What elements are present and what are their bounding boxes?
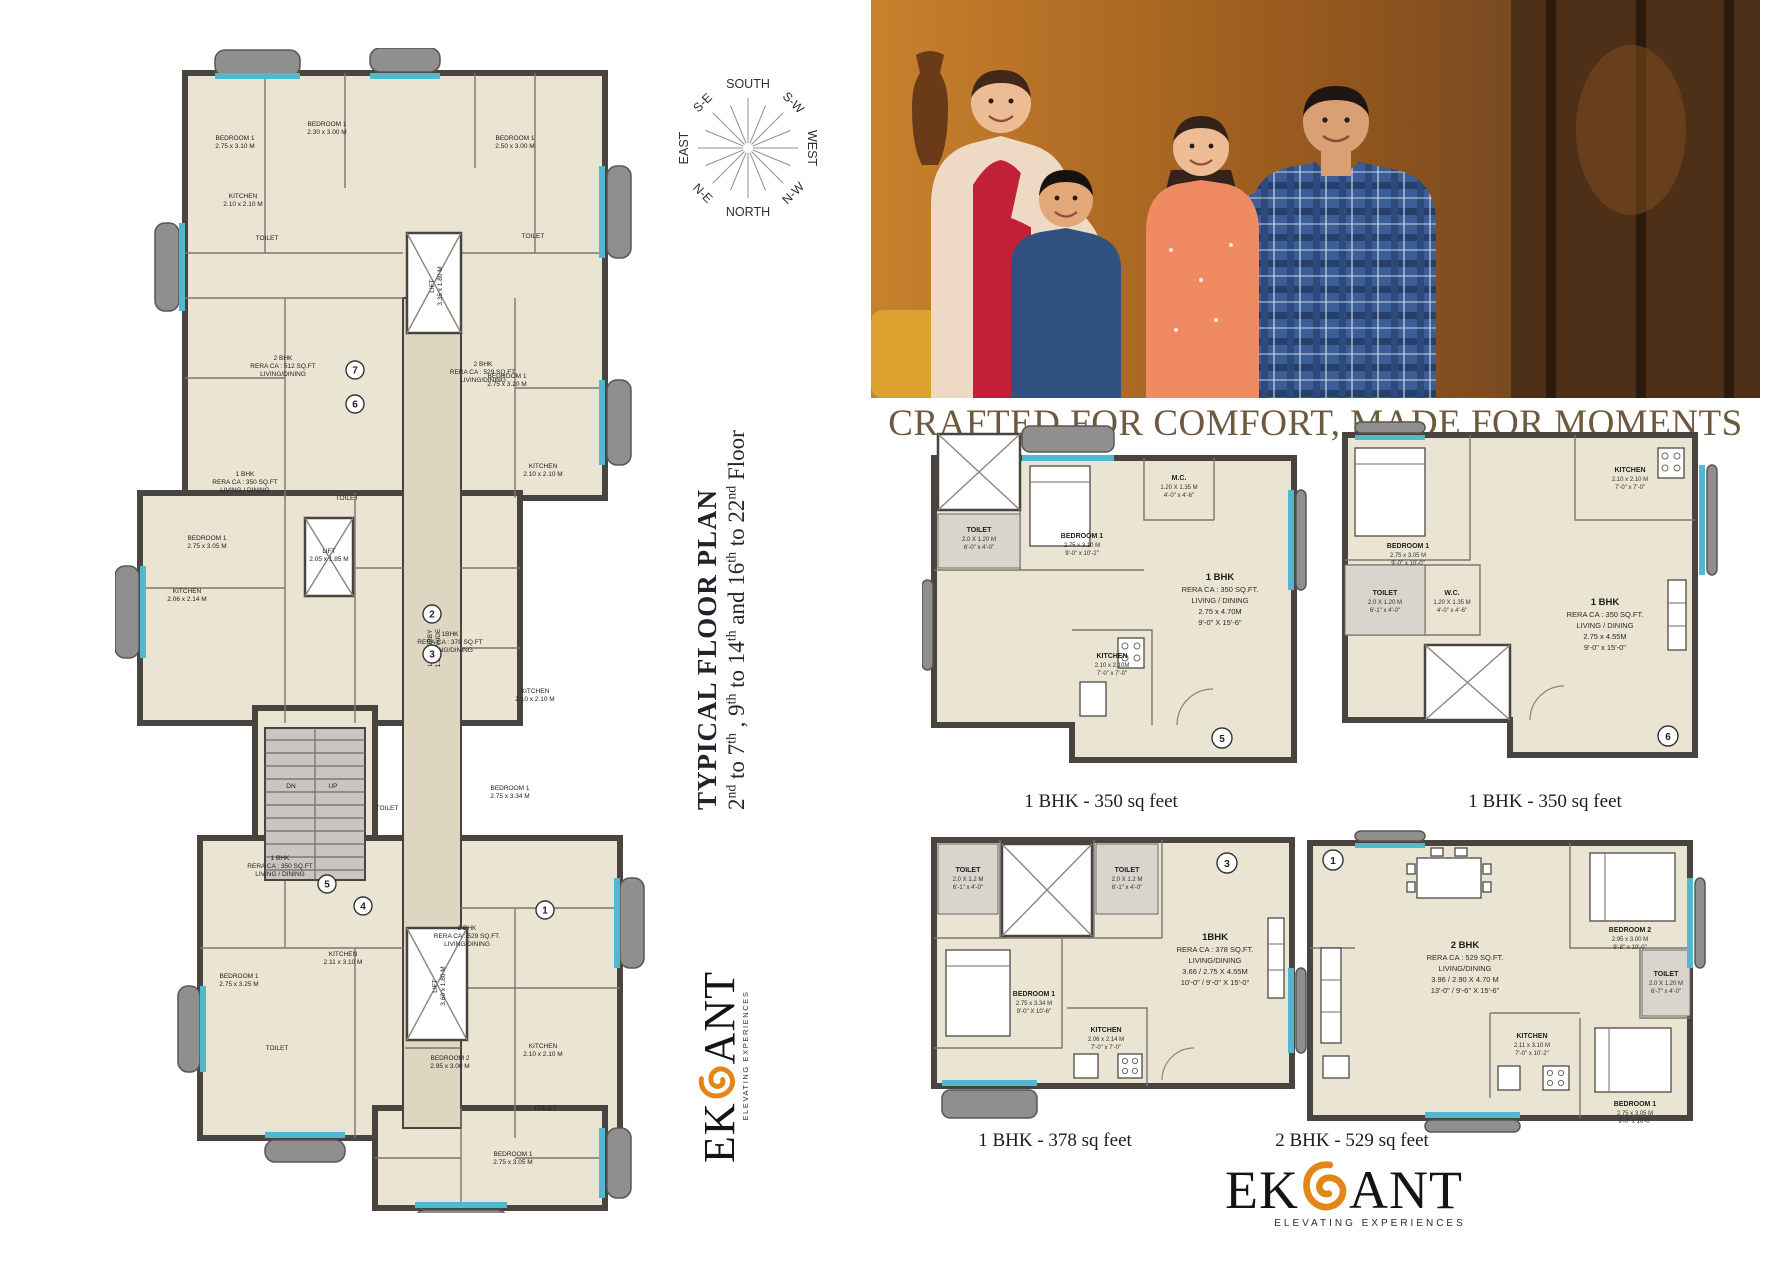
svg-text:2.0 X 1.20 M: 2.0 X 1.20 M [962, 537, 996, 543]
plan-room-label: TOILET [534, 1105, 557, 1112]
unit-plan-3: TOILET 2.0 X 1.2 M 6'-1" x 4'-0" TOILET … [922, 828, 1307, 1133]
svg-text:9'-0" x 15'-0": 9'-0" x 15'-0" [1584, 643, 1626, 652]
svg-text:7'-0" x 7'-0": 7'-0" x 7'-0" [1091, 1045, 1121, 1051]
svg-text:KITCHEN: KITCHEN [1090, 1027, 1121, 1034]
svg-text:RERA CA : 378 SQ.FT.: RERA CA : 378 SQ.FT. [1177, 945, 1254, 954]
svg-text:2.06 x 2.14 M: 2.06 x 2.14 M [1088, 1037, 1124, 1043]
svg-text:9'-8" x 10'-0": 9'-8" x 10'-0" [1613, 945, 1647, 951]
unit-number-badge: 1 [1323, 850, 1343, 870]
brand-text-post: ANT [1349, 1168, 1463, 1214]
svg-text:6'-1" x 4'-0": 6'-1" x 4'-0" [953, 885, 983, 891]
svg-text:2.75 x 4.55M: 2.75 x 4.55M [1583, 632, 1626, 641]
svg-text:LIVING/DINING: LIVING/DINING [1189, 956, 1242, 965]
svg-text:3: 3 [1224, 859, 1230, 870]
brand-text-pre: EK [701, 1102, 738, 1163]
svg-text:KITCHEN: KITCHEN [1516, 1033, 1547, 1040]
svg-text:LIVING / DINING: LIVING / DINING [1576, 621, 1633, 630]
svg-text:6: 6 [1665, 732, 1671, 743]
svg-text:4'-0" x 4'-6": 4'-0" x 4'-6" [1164, 493, 1194, 499]
plan-room-label: BEDROOM 12.75 x 3.05 M [187, 535, 227, 550]
svg-text:2.75 x 3.05 M: 2.75 x 3.05 M [1390, 553, 1426, 559]
brand-text-post: ANT [701, 971, 738, 1064]
unit1-caption: 2 BHK - 529 sq feet [1275, 1130, 1429, 1152]
compass-direction-label: N-E [690, 181, 715, 206]
compass-direction-label: N-W [779, 179, 807, 207]
compass-direction-label: NORTH [726, 205, 770, 219]
svg-text:4'-0" x 4'-6": 4'-0" x 4'-6" [1437, 608, 1467, 614]
compass-direction-label: SOUTH [726, 77, 770, 91]
brand-logo: EK ANT ELEVATING EXPERIENCES [1225, 1158, 1485, 1229]
svg-text:RERA CA : 529 SQ.FT.: RERA CA : 529 SQ.FT. [1427, 953, 1504, 962]
plan-room-label: KITCHEN2.10 x 2.10 M [515, 688, 554, 703]
plan-room-label: BEDROOM 22.95 x 3.00 M [430, 1055, 470, 1070]
svg-text:LIVING/DINING: LIVING/DINING [1439, 964, 1492, 973]
svg-text:2.75 x 3.34 M: 2.75 x 3.34 M [1016, 1001, 1052, 1007]
plan-room-label: BEDROOM 12.75 x 3.20 M [487, 373, 527, 388]
svg-text:7'-0" x 10'-2": 7'-0" x 10'-2" [1515, 1051, 1549, 1057]
svg-text:RERA CA : 350 SQ.FT.: RERA CA : 350 SQ.FT. [1567, 610, 1644, 619]
plan-room-label: BEDROOM 12.75 x 3.10 M [215, 135, 255, 150]
svg-text:7: 7 [352, 366, 358, 377]
plan-room-label: TOILET [256, 235, 279, 242]
unit5-caption: 1 BHK - 350 sq feet [1024, 791, 1178, 813]
bed-icon [1355, 448, 1425, 536]
svg-text:6'-0" x 4'-0": 6'-0" x 4'-0" [964, 545, 994, 551]
brand-logo-rotated: EK ANT ELEVATING EXPERIENCES [696, 948, 796, 1163]
svg-text:2.11 x 3.10 M: 2.11 x 3.10 M [1514, 1043, 1550, 1049]
svg-text:2.75 x 4.70M: 2.75 x 4.70M [1198, 607, 1241, 616]
plan-room-label: BEDROOM 12.50 x 3.00 M [495, 135, 535, 150]
unit-plan-5: TOILET 2.0 X 1.20 M 6'-0" x 4'-0" BEDROO… [922, 420, 1307, 765]
bed-icon [1595, 1028, 1671, 1092]
svg-text:6'-1" x 4'-0": 6'-1" x 4'-0" [1370, 608, 1400, 614]
svg-text:W.C.: W.C. [1444, 590, 1459, 597]
plan-room-label: DN [286, 783, 296, 790]
compass-direction-label: EAST [677, 131, 691, 164]
brand-text-pre: EK [1225, 1168, 1299, 1214]
compass-direction-label: WEST [805, 130, 819, 166]
svg-text:RERA CA : 350 SQ.FT.: RERA CA : 350 SQ.FT. [1182, 585, 1259, 594]
svg-text:2.0 X 1.20 M: 2.0 X 1.20 M [1368, 600, 1402, 606]
unit3-caption: 1 BHK - 378 sq feet [978, 1130, 1132, 1152]
svg-text:3.66 / 2.75 X 4.55M: 3.66 / 2.75 X 4.55M [1182, 967, 1247, 976]
plan-room-label: KITCHEN2.10 x 2.10 M [523, 1043, 562, 1058]
svg-text:4: 4 [360, 902, 366, 913]
svg-text:6'-1" x 4'-0": 6'-1" x 4'-0" [1112, 885, 1142, 891]
svg-text:2: 2 [429, 610, 435, 621]
plan-room-label: TOILET [266, 1045, 289, 1052]
typical-floor-plan-drawing: 2 BHKRERA CA : 512 SQ.FTLIVING/DINING2 B… [115, 48, 675, 1213]
bed-icon [946, 950, 1010, 1036]
plan-room-label: BEDROOM 12.75 x 3.05 M [493, 1151, 533, 1166]
svg-text:BEDROOM 2: BEDROOM 2 [1609, 927, 1652, 934]
floor-plan-title-block: TYPICAL FLOOR PLAN 2nd to 7th , 9th to 1… [692, 298, 764, 810]
svg-text:1 BHK: 1 BHK [1591, 597, 1620, 608]
plan-room-label: BEDROOM 12.75 x 3.25 M [219, 973, 259, 988]
svg-text:1BHK: 1BHK [1202, 932, 1228, 943]
svg-text:1.20 X 1.35 M: 1.20 X 1.35 M [1160, 485, 1197, 491]
svg-text:1: 1 [1330, 856, 1336, 867]
unit6-caption: 1 BHK - 350 sq feet [1468, 791, 1622, 813]
svg-text:3: 3 [429, 650, 435, 661]
svg-text:TOILET: TOILET [967, 527, 992, 534]
svg-text:2 BHK: 2 BHK [1451, 940, 1480, 951]
svg-text:9'-0" X 10'-6": 9'-0" X 10'-6" [1017, 1009, 1052, 1015]
svg-text:TOILET: TOILET [1115, 867, 1140, 874]
svg-text:7'-0" x 7'-0": 7'-0" x 7'-0" [1615, 485, 1645, 491]
svg-text:1.20 X 1.35 M: 1.20 X 1.35 M [1433, 600, 1470, 606]
svg-text:5: 5 [1219, 734, 1225, 745]
svg-text:2.10 x 2.10M: 2.10 x 2.10M [1095, 663, 1130, 669]
unit-plan-1: BEDROOM 2 2.95 x 3.00 M 9'-8" x 10'-0" T… [1295, 828, 1710, 1133]
sofa-icon [1268, 918, 1284, 998]
svg-text:7'-0" x 7'-0": 7'-0" x 7'-0" [1097, 671, 1127, 677]
plan-room-label: KITCHEN2.06 x 2.14 M [167, 588, 206, 603]
compass-lines [698, 98, 798, 198]
bed-icon [1590, 853, 1675, 921]
svg-text:2.0 X 1.2 M: 2.0 X 1.2 M [1112, 877, 1143, 883]
svg-text:1 BHK: 1 BHK [1206, 572, 1235, 583]
svg-text:LIVING / DINING: LIVING / DINING [1191, 596, 1248, 605]
unit-plan-6: BEDROOM 1 2.75 x 3.05 M 9'-0" x 10'-0" K… [1330, 420, 1720, 775]
plan-room-label: TOILET [376, 805, 399, 812]
plan-room-label: KITCHEN2.10 x 2.10 M [223, 193, 262, 208]
svg-text:BEDROOM 1: BEDROOM 1 [1387, 543, 1430, 550]
plan-room-label: TOILET [522, 233, 545, 240]
svg-text:3.96 / 2.90 X 4.70 M: 3.96 / 2.90 X 4.70 M [1431, 975, 1499, 984]
svg-text:1: 1 [542, 906, 548, 917]
svg-text:6'-7" x 4'-0": 6'-7" x 4'-0" [1651, 989, 1681, 995]
building-blocks [140, 73, 620, 1208]
unit-number-badge: 6 [1658, 726, 1678, 746]
svg-text:2.75 x 3.10 M: 2.75 x 3.10 M [1064, 543, 1100, 549]
unit-number-badge: 5 [1212, 728, 1232, 748]
plan-room-label: TOILET [336, 495, 359, 502]
sofa-icon [1668, 580, 1686, 650]
svg-text:2.10 x 2.10 M: 2.10 x 2.10 M [1612, 477, 1648, 483]
svg-text:2.0 X 1.2 M: 2.0 X 1.2 M [953, 877, 984, 883]
svg-text:TOILET: TOILET [1654, 971, 1679, 978]
svg-text:5: 5 [324, 880, 330, 891]
floor-range-subtitle: 2nd to 7th , 9th to 14th and 16th to 22n… [723, 298, 751, 810]
plan-room-label: KITCHEN2.11 x 3.10 M [324, 951, 363, 966]
unit-number-badge: 3 [1217, 853, 1237, 873]
svg-text:M.C.: M.C. [1172, 475, 1187, 482]
svg-text:BEDROOM 1: BEDROOM 1 [1614, 1101, 1657, 1108]
elephant-icon [696, 1066, 738, 1100]
svg-text:TOILET: TOILET [956, 867, 981, 874]
svg-text:BEDROOM 1: BEDROOM 1 [1013, 991, 1056, 998]
compass-rose: SOUTHS-WWESTN-WNORTHN-EEASTS-E [668, 68, 828, 228]
svg-text:KITCHEN: KITCHEN [1096, 653, 1127, 660]
svg-text:9'-0" x 10'-2": 9'-0" x 10'-2" [1065, 551, 1099, 557]
svg-text:10'-0" / 9'-0" X 15'-0": 10'-0" / 9'-0" X 15'-0" [1181, 978, 1250, 987]
svg-text:2.75 x 3.05 M: 2.75 x 3.05 M [1617, 1111, 1653, 1117]
compass-direction-label: S-W [780, 89, 807, 116]
plan-room-label: KITCHEN2.10 x 2.10 M [523, 463, 562, 478]
plan-room-label: BEDROOM 12.30 x 3.00 M [307, 121, 347, 136]
svg-text:BEDROOM 1: BEDROOM 1 [1061, 533, 1104, 540]
elephant-icon [1301, 1158, 1347, 1214]
svg-text:2.0 X 1.20 M: 2.0 X 1.20 M [1649, 981, 1683, 987]
svg-text:6: 6 [352, 400, 358, 411]
svg-text:TOILET: TOILET [1373, 590, 1398, 597]
plan-room-label: UP [328, 783, 337, 790]
page-title: TYPICAL FLOOR PLAN [692, 298, 723, 810]
svg-text:2.95 x 3.00 M: 2.95 x 3.00 M [1612, 937, 1648, 943]
svg-text:9'-0" X 15'-6": 9'-0" X 15'-6" [1198, 618, 1242, 627]
family-photo [871, 0, 1760, 398]
plan-room-label: BEDROOM 12.75 x 3.34 M [490, 785, 530, 800]
kitchen-icons [1658, 448, 1684, 478]
svg-text:9'-0" x 10'-0": 9'-0" x 10'-0" [1391, 561, 1425, 567]
background-glow [1576, 45, 1686, 215]
brochure-page: { "colors":{"accent_orange":"#e2861a","h… [0, 0, 1785, 1262]
svg-text:KITCHEN: KITCHEN [1614, 467, 1645, 474]
compass-direction-label: S-E [690, 90, 715, 115]
svg-text:9'-0" x 10'-0": 9'-0" x 10'-0" [1618, 1119, 1652, 1125]
svg-text:13'-0" / 9'-6" X 15'-6": 13'-0" / 9'-6" X 15'-6" [1431, 986, 1500, 995]
